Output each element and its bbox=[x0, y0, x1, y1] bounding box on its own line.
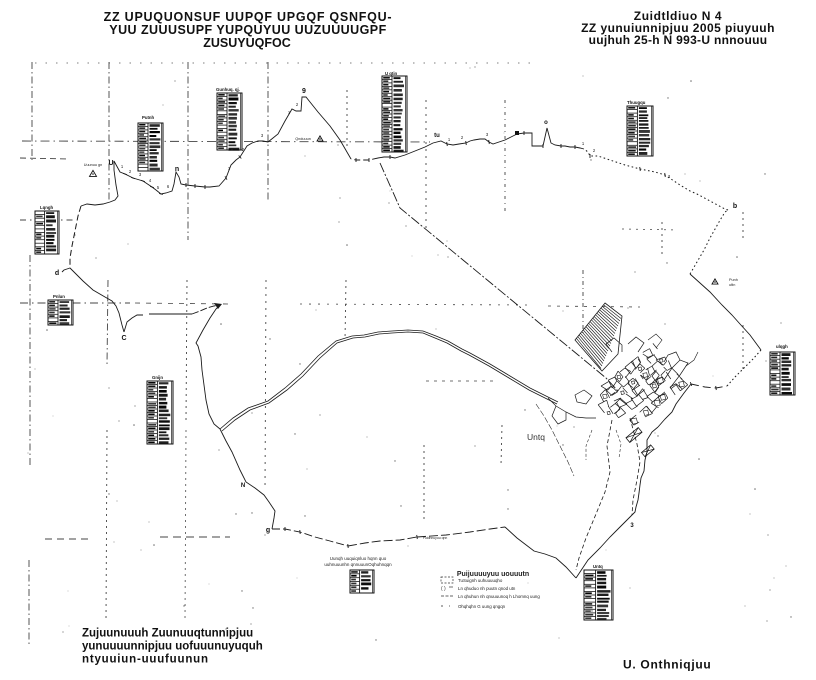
svg-text:Untq: Untq bbox=[527, 432, 545, 442]
svg-text:ZUSUYUQFOC: ZUSUYUQFOC bbox=[203, 36, 291, 50]
svg-text:yunuuuunnipjuu uofuuunuyuquh: yunuuuunnipjuu uofuuunuyuquh bbox=[82, 641, 263, 653]
svg-text:Pnlun: Pnlun bbox=[53, 294, 65, 299]
svg-text:Uuunuu gn: Uuunuu gn bbox=[84, 163, 103, 167]
svg-text:Gnijn: Gnijn bbox=[152, 375, 163, 380]
svg-text:Gunhuq. qj.: Gunhuq. qj. bbox=[216, 87, 240, 92]
svg-text:U: U bbox=[108, 160, 113, 167]
svg-text:d: d bbox=[55, 270, 59, 277]
svg-text:9: 9 bbox=[302, 88, 306, 95]
svg-text:ZZ UPUQUONSUF UUPQF UPGQF QSNF: ZZ UPUQUONSUF UUPQF UPGQF QSNFQU- bbox=[104, 10, 393, 24]
svg-text:Ln qhuduo nh puutn qnod utn: Ln qhuduo nh puutn qnod utn bbox=[458, 586, 516, 591]
svg-text:U qtin: U qtin bbox=[385, 71, 398, 76]
svg-text:uujhuh 25-h N 993-U nnnouuu: uujhuh 25-h N 993-U nnnouuu bbox=[589, 33, 768, 47]
svg-text:Lqngh: Lqngh bbox=[40, 205, 53, 210]
svg-text:n: n bbox=[175, 166, 179, 173]
svg-text:Zujuunuuuh Zuunuuqtunnipjuu: Zujuunuuuh Zuunuuqtunnipjuu bbox=[82, 628, 253, 640]
svg-text:( ): ( ) bbox=[441, 586, 446, 592]
svg-text:ulqgh: ulqgh bbox=[776, 344, 788, 349]
svg-text:Untq: Untq bbox=[593, 564, 603, 569]
svg-text:Ohqhqhn G uung qngqn: Ohqhqhn G uung qngqn bbox=[458, 604, 506, 609]
svg-text:Qnduuun: Qnduuun bbox=[295, 137, 311, 141]
svg-text:TuSuignh uuhuuuuqho: TuSuignh uuhuuuuqho bbox=[458, 578, 503, 583]
svg-text:Puijuuuuyuu uouuutn: Puijuuuuyuu uouuutn bbox=[457, 571, 529, 578]
svg-text:Putnh: Putnh bbox=[142, 115, 155, 120]
svg-text:tu: tu bbox=[434, 133, 440, 139]
svg-text:N: N bbox=[241, 483, 245, 489]
svg-text:uuhnuuunhn qnnuuunOqhuhnqqn: uuhnuuunhn qnnuuunOqhuhnqqn bbox=[324, 562, 392, 567]
svg-text:b: b bbox=[733, 203, 737, 210]
svg-text:Ln qhuhun nh qnuuuunoq h Lhomn: Ln qhuhun nh qnuuuunoq h Lhomnq uung bbox=[458, 594, 540, 599]
svg-text:YUU ZUUUSUPF YUPQUYUU UUZUUUUG: YUU ZUUUSUPF YUPQUYUU UUZUUUUGPF bbox=[109, 23, 386, 37]
svg-text:ntyuuiun-uuufuunun: ntyuuiun-uuufuunun bbox=[82, 654, 209, 666]
svg-text:Thuugqu: Thuugqu bbox=[627, 100, 646, 105]
svg-text:g: g bbox=[266, 527, 270, 534]
svg-text:Puidnnuyuu qnn: Puidnnuyuu qnn bbox=[423, 536, 448, 540]
svg-text:Punh: Punh bbox=[729, 278, 738, 282]
svg-text:o: o bbox=[544, 120, 548, 126]
svg-text:U. Onthniqjuu: U. Onthniqjuu bbox=[623, 658, 711, 672]
svg-text:C: C bbox=[121, 335, 126, 342]
svg-text:Uunqh uuquiqnluo hqnn quo: Uunqh uuquiqnluo hqnn quo bbox=[330, 556, 387, 561]
